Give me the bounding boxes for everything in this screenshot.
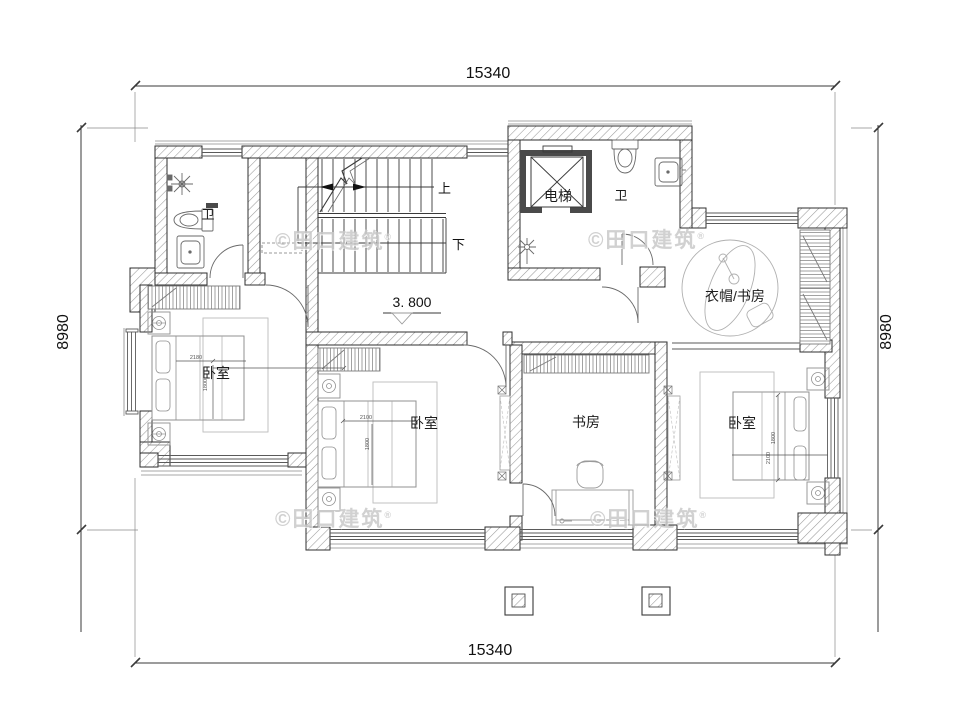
nightstand xyxy=(318,374,340,398)
pillow xyxy=(322,407,336,439)
bathroom-top-fixtures xyxy=(612,140,686,186)
pillow xyxy=(156,341,170,373)
door-study xyxy=(523,484,555,516)
windows xyxy=(126,149,838,540)
dim-right: 8980 xyxy=(878,314,895,350)
wardrobe-cloak xyxy=(800,230,830,344)
floor-plan-canvas: 15340 15340 8980 8980 xyxy=(0,0,961,722)
bed-right-dim-w: 2100 xyxy=(766,452,772,464)
chair xyxy=(745,301,775,328)
label-bedroom-middle: 卧室 xyxy=(410,415,438,431)
level-value: 3. 800 xyxy=(393,294,432,310)
watermark: ©田口建筑® xyxy=(275,503,391,533)
rug xyxy=(373,382,437,503)
floor-plan-drawing: 15340 15340 8980 8980 xyxy=(0,0,961,722)
watermark: ©田口建筑® xyxy=(590,503,706,533)
dim-left: 8980 xyxy=(55,314,72,350)
label-cloak-study: 衣帽/书房 xyxy=(705,288,765,304)
bed-right-dim-d: 1800 xyxy=(771,432,777,444)
chair xyxy=(577,461,603,488)
exterior-sill-lines xyxy=(124,121,848,548)
bedroom-right-furniture xyxy=(668,368,829,504)
label-elevator: 电梯 xyxy=(544,188,572,204)
walls xyxy=(130,126,847,555)
rug xyxy=(700,372,774,498)
bedroom-middle-furniture xyxy=(318,374,510,511)
label-study: 书房 xyxy=(572,414,600,430)
pillow xyxy=(156,379,170,411)
wardrobe-bed-left xyxy=(148,286,240,309)
stairs-up-label: 上 xyxy=(438,181,451,196)
wardrobe-bed-middle xyxy=(318,348,380,371)
label-bath-left: 卫 xyxy=(201,207,214,222)
pillow xyxy=(794,446,806,480)
dimension-lines xyxy=(77,81,883,667)
door-cloak-room xyxy=(602,287,638,323)
bed-middle-dim-w: 2100 xyxy=(360,415,372,421)
watermark: ©田口建筑® xyxy=(588,224,704,254)
label-bedroom-right: 卧室 xyxy=(728,415,756,431)
shower-head-icon xyxy=(167,173,193,195)
door-bedroom-left xyxy=(266,285,308,327)
glass-partition xyxy=(672,343,800,349)
toilet-tank xyxy=(612,140,638,149)
bed-left-dim-w: 2180 xyxy=(190,355,202,361)
dim-bottom: 15340 xyxy=(468,642,513,659)
label-bath-top: 卫 xyxy=(614,188,627,203)
pillow xyxy=(794,397,806,431)
stairs-down-label: 下 xyxy=(452,237,465,252)
dim-top: 15340 xyxy=(466,65,511,82)
door-bedroom-middle xyxy=(464,345,506,387)
detached-columns xyxy=(505,587,670,615)
bed xyxy=(152,336,244,420)
watermark: ©田口建筑® xyxy=(275,225,391,255)
pillow xyxy=(322,447,336,479)
label-bedroom-left: 卧室 xyxy=(202,365,230,381)
staircase xyxy=(298,158,446,273)
door-bath-left xyxy=(210,245,243,278)
bed-middle-dim-d: 1800 xyxy=(365,438,371,450)
sprinkler-icon xyxy=(518,238,536,264)
level-marker xyxy=(383,313,441,324)
column-markers xyxy=(498,386,672,480)
toilet-bowl xyxy=(614,149,636,173)
